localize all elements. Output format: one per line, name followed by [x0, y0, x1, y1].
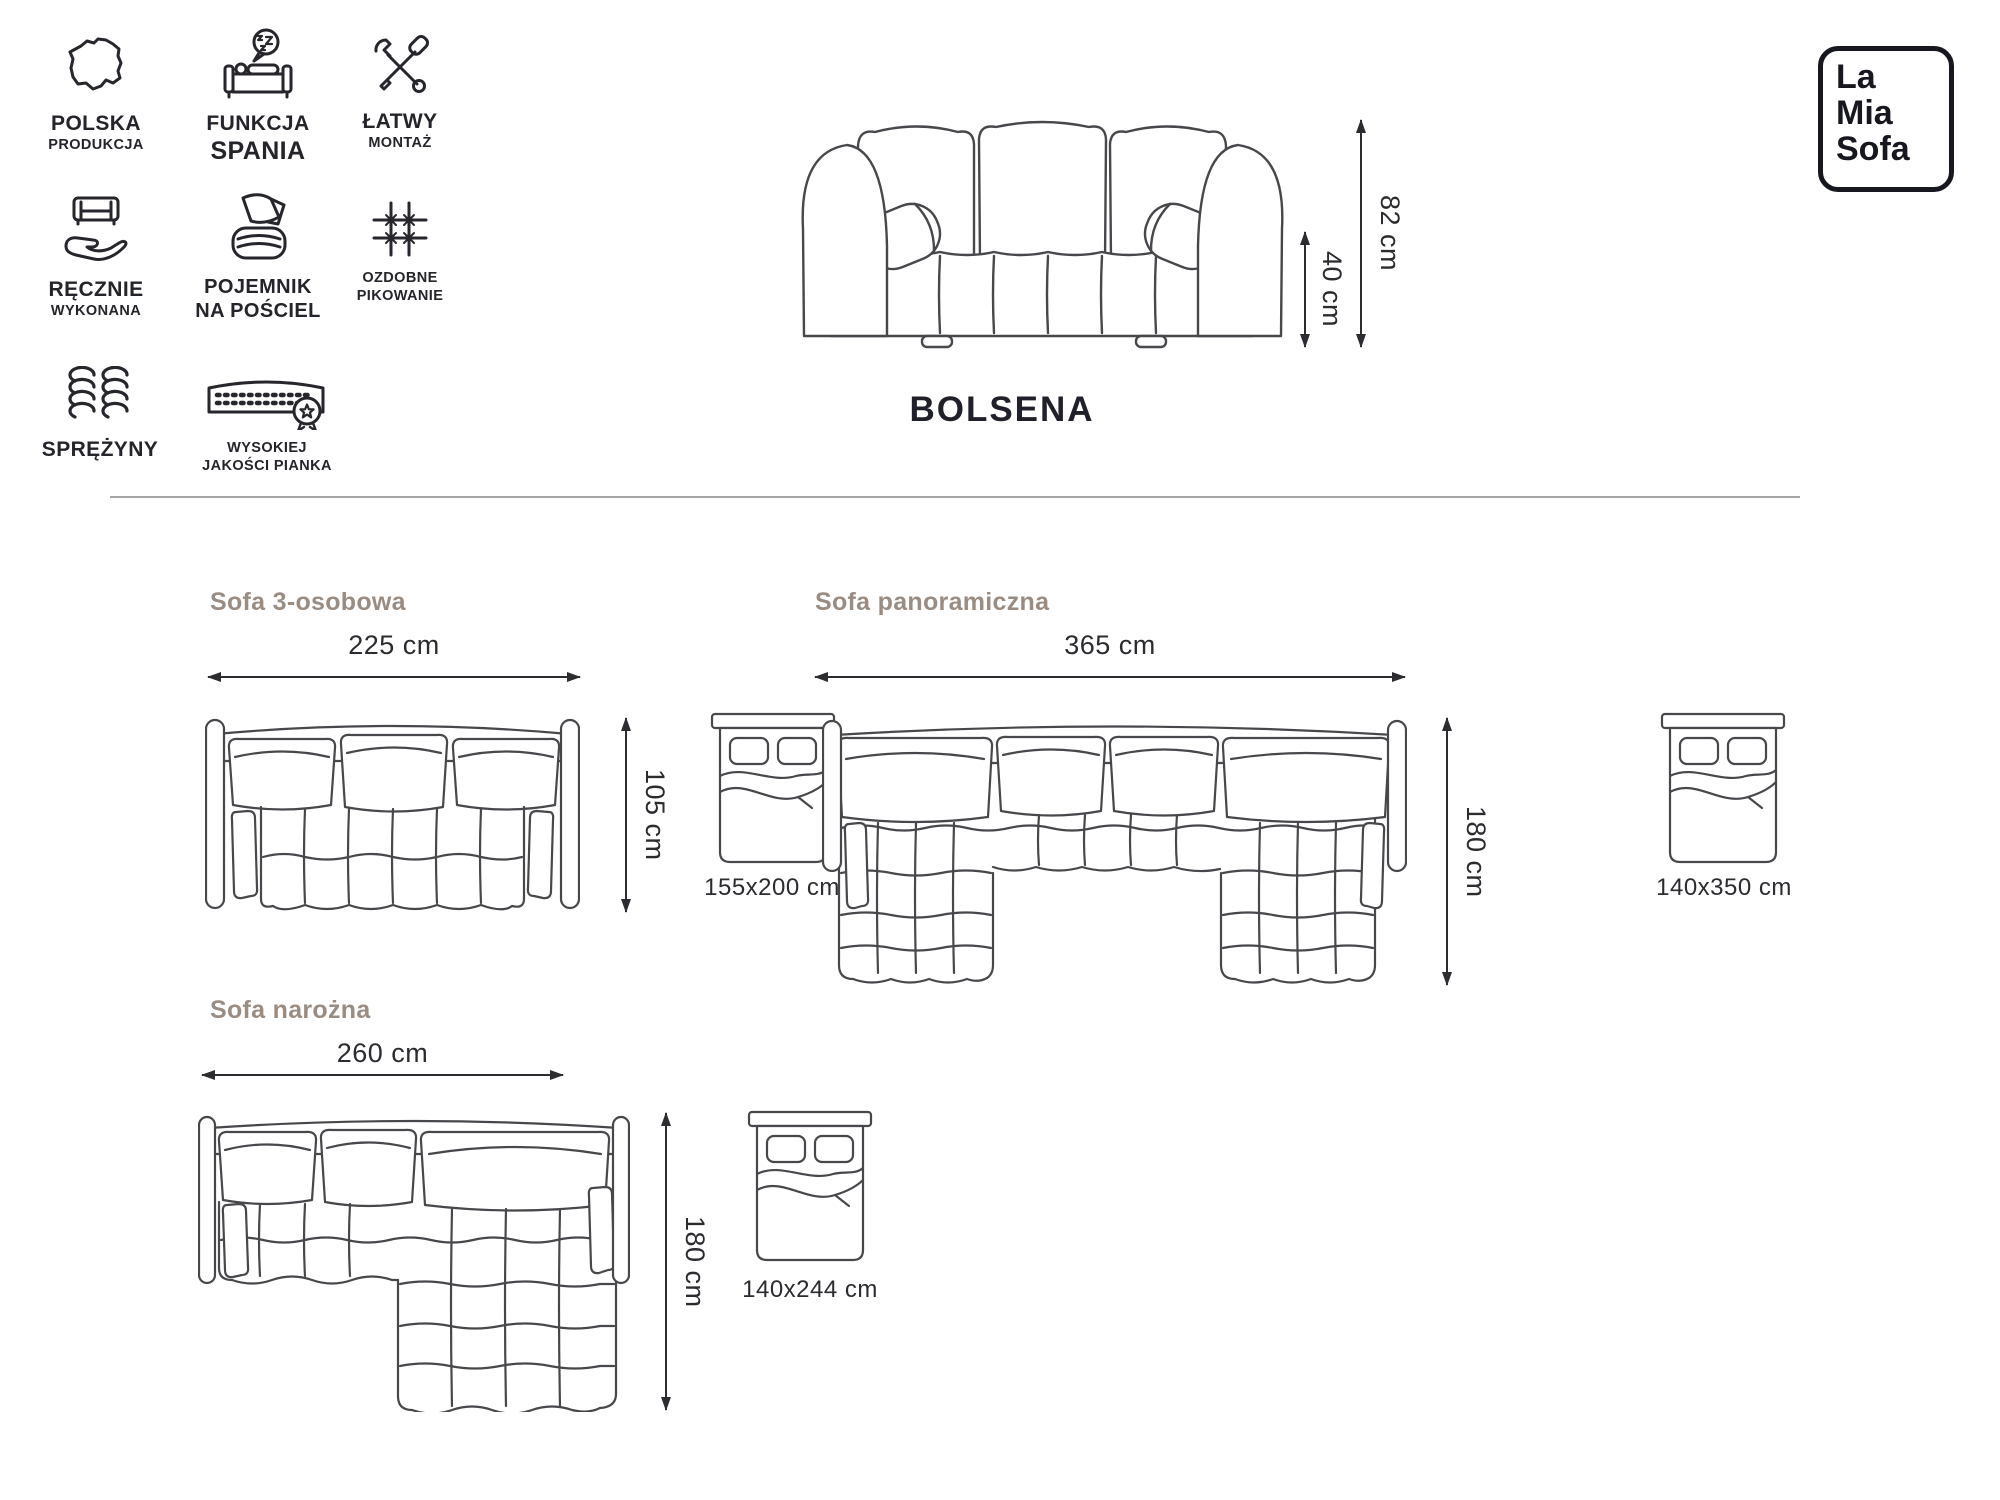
feature-sublabel: PIKOWANIE [357, 287, 444, 305]
variant-2-bed-size: 140x350 cm [1624, 874, 1824, 902]
feature-sublabel: PRODUKCJA [48, 136, 143, 154]
variant-3-bed-size: 140x244 cm [710, 1276, 910, 1304]
variant-1-heading: Sofa 3-osobowa [210, 588, 406, 617]
total-height-arrow [1360, 120, 1362, 347]
feature-label: POLSKA [51, 112, 141, 136]
variant-1-width-label: 225 cm [208, 630, 580, 661]
feature-latwy-montaz: ŁATWY MONTAŻ [322, 34, 478, 152]
variant-1-depth-arrow [625, 718, 627, 912]
brand-logo-line: Sofa [1836, 131, 1949, 167]
feature-label: RĘCZNIE [49, 278, 144, 302]
springs-icon [62, 366, 138, 428]
feature-label: POJEMNIK [204, 276, 312, 299]
feature-funkcja-spania: FUNKCJA SPANIA [178, 28, 338, 167]
quilting-grid-icon [369, 198, 431, 260]
variant-2-depth-label: 180 cm [1460, 718, 1491, 985]
feature-label: OZDOBNE [362, 270, 437, 287]
feature-sublabel: NA POŚCIEL [195, 299, 321, 324]
handmade-icon [58, 192, 134, 268]
bedding-storage-icon [223, 190, 293, 266]
sofa-top-view-panoramic [822, 715, 1407, 985]
variant-3-depth-arrow [665, 1113, 667, 1410]
feature-sublabel: WYKONANA [51, 302, 141, 320]
variant-2-width-arrow [815, 676, 1405, 678]
poland-map-icon [61, 32, 131, 102]
seat-height-arrow [1304, 232, 1306, 347]
seat-height-label: 40 cm [1316, 232, 1347, 347]
sleeping-function-icon [219, 28, 297, 102]
feature-ozdobne-pikowanie: OZDOBNE PIKOWANIE [322, 198, 478, 305]
feature-label: FUNKCJA [206, 112, 309, 136]
variant-1-width-arrow [208, 676, 580, 678]
feature-label: WYSOKIEJ [227, 440, 307, 457]
variant-2-heading: Sofa panoramiczna [815, 588, 1049, 617]
brand-logo-line: La [1836, 59, 1949, 95]
product-name: BOLSENA [802, 390, 1202, 430]
variant-3-width-arrow [202, 1074, 563, 1076]
feature-label: ŁATWY [362, 110, 437, 134]
feature-wysokiej-jakosci-pianka: WYSOKIEJ JAKOŚCI PIANKA [172, 368, 362, 475]
variant-3-heading: Sofa narożna [210, 996, 371, 1025]
bed-top-view-1 [710, 712, 836, 864]
feature-sublabel: SPANIA [210, 136, 305, 167]
brand-logo-line: Mia [1836, 95, 1949, 131]
feature-sublabel: JAKOŚCI PIANKA [202, 457, 332, 475]
total-height-label: 82 cm [1374, 120, 1405, 347]
sofa-top-view-corner [198, 1112, 630, 1412]
variant-2-depth-arrow [1446, 718, 1448, 985]
tools-icon [367, 34, 433, 100]
section-divider [110, 496, 1800, 498]
variant-2-width-label: 365 cm [815, 630, 1405, 661]
foam-quality-icon [201, 368, 333, 430]
feature-sprezyny: SPRĘŻYNY [20, 366, 180, 462]
feature-polska-produkcja: POLSKA PRODUKCJA [16, 32, 176, 154]
bed-top-view-2 [1660, 712, 1786, 864]
spec-sheet-page: POLSKA PRODUKCJA FUNKCJA SPANIA ŁATWY MO… [0, 0, 2000, 1500]
feature-recznie-wykonana: RĘCZNIE WYKONANA [16, 192, 176, 320]
variant-3-width-label: 260 cm [202, 1038, 563, 1069]
feature-sublabel: MONTAŻ [368, 134, 431, 152]
feature-label: SPRĘŻYNY [42, 438, 158, 462]
brand-logo: La Mia Sofa [1818, 46, 1954, 192]
sofa-front-view-drawing [790, 84, 1295, 354]
bed-top-view-3 [747, 1110, 873, 1262]
variant-1-depth-label: 105 cm [639, 718, 670, 912]
variant-3-depth-label: 180 cm [679, 1113, 710, 1410]
feature-pojemnik-na-posciel: POJEMNIK NA POŚCIEL [178, 190, 338, 324]
sofa-top-view-3-seater [205, 715, 580, 915]
